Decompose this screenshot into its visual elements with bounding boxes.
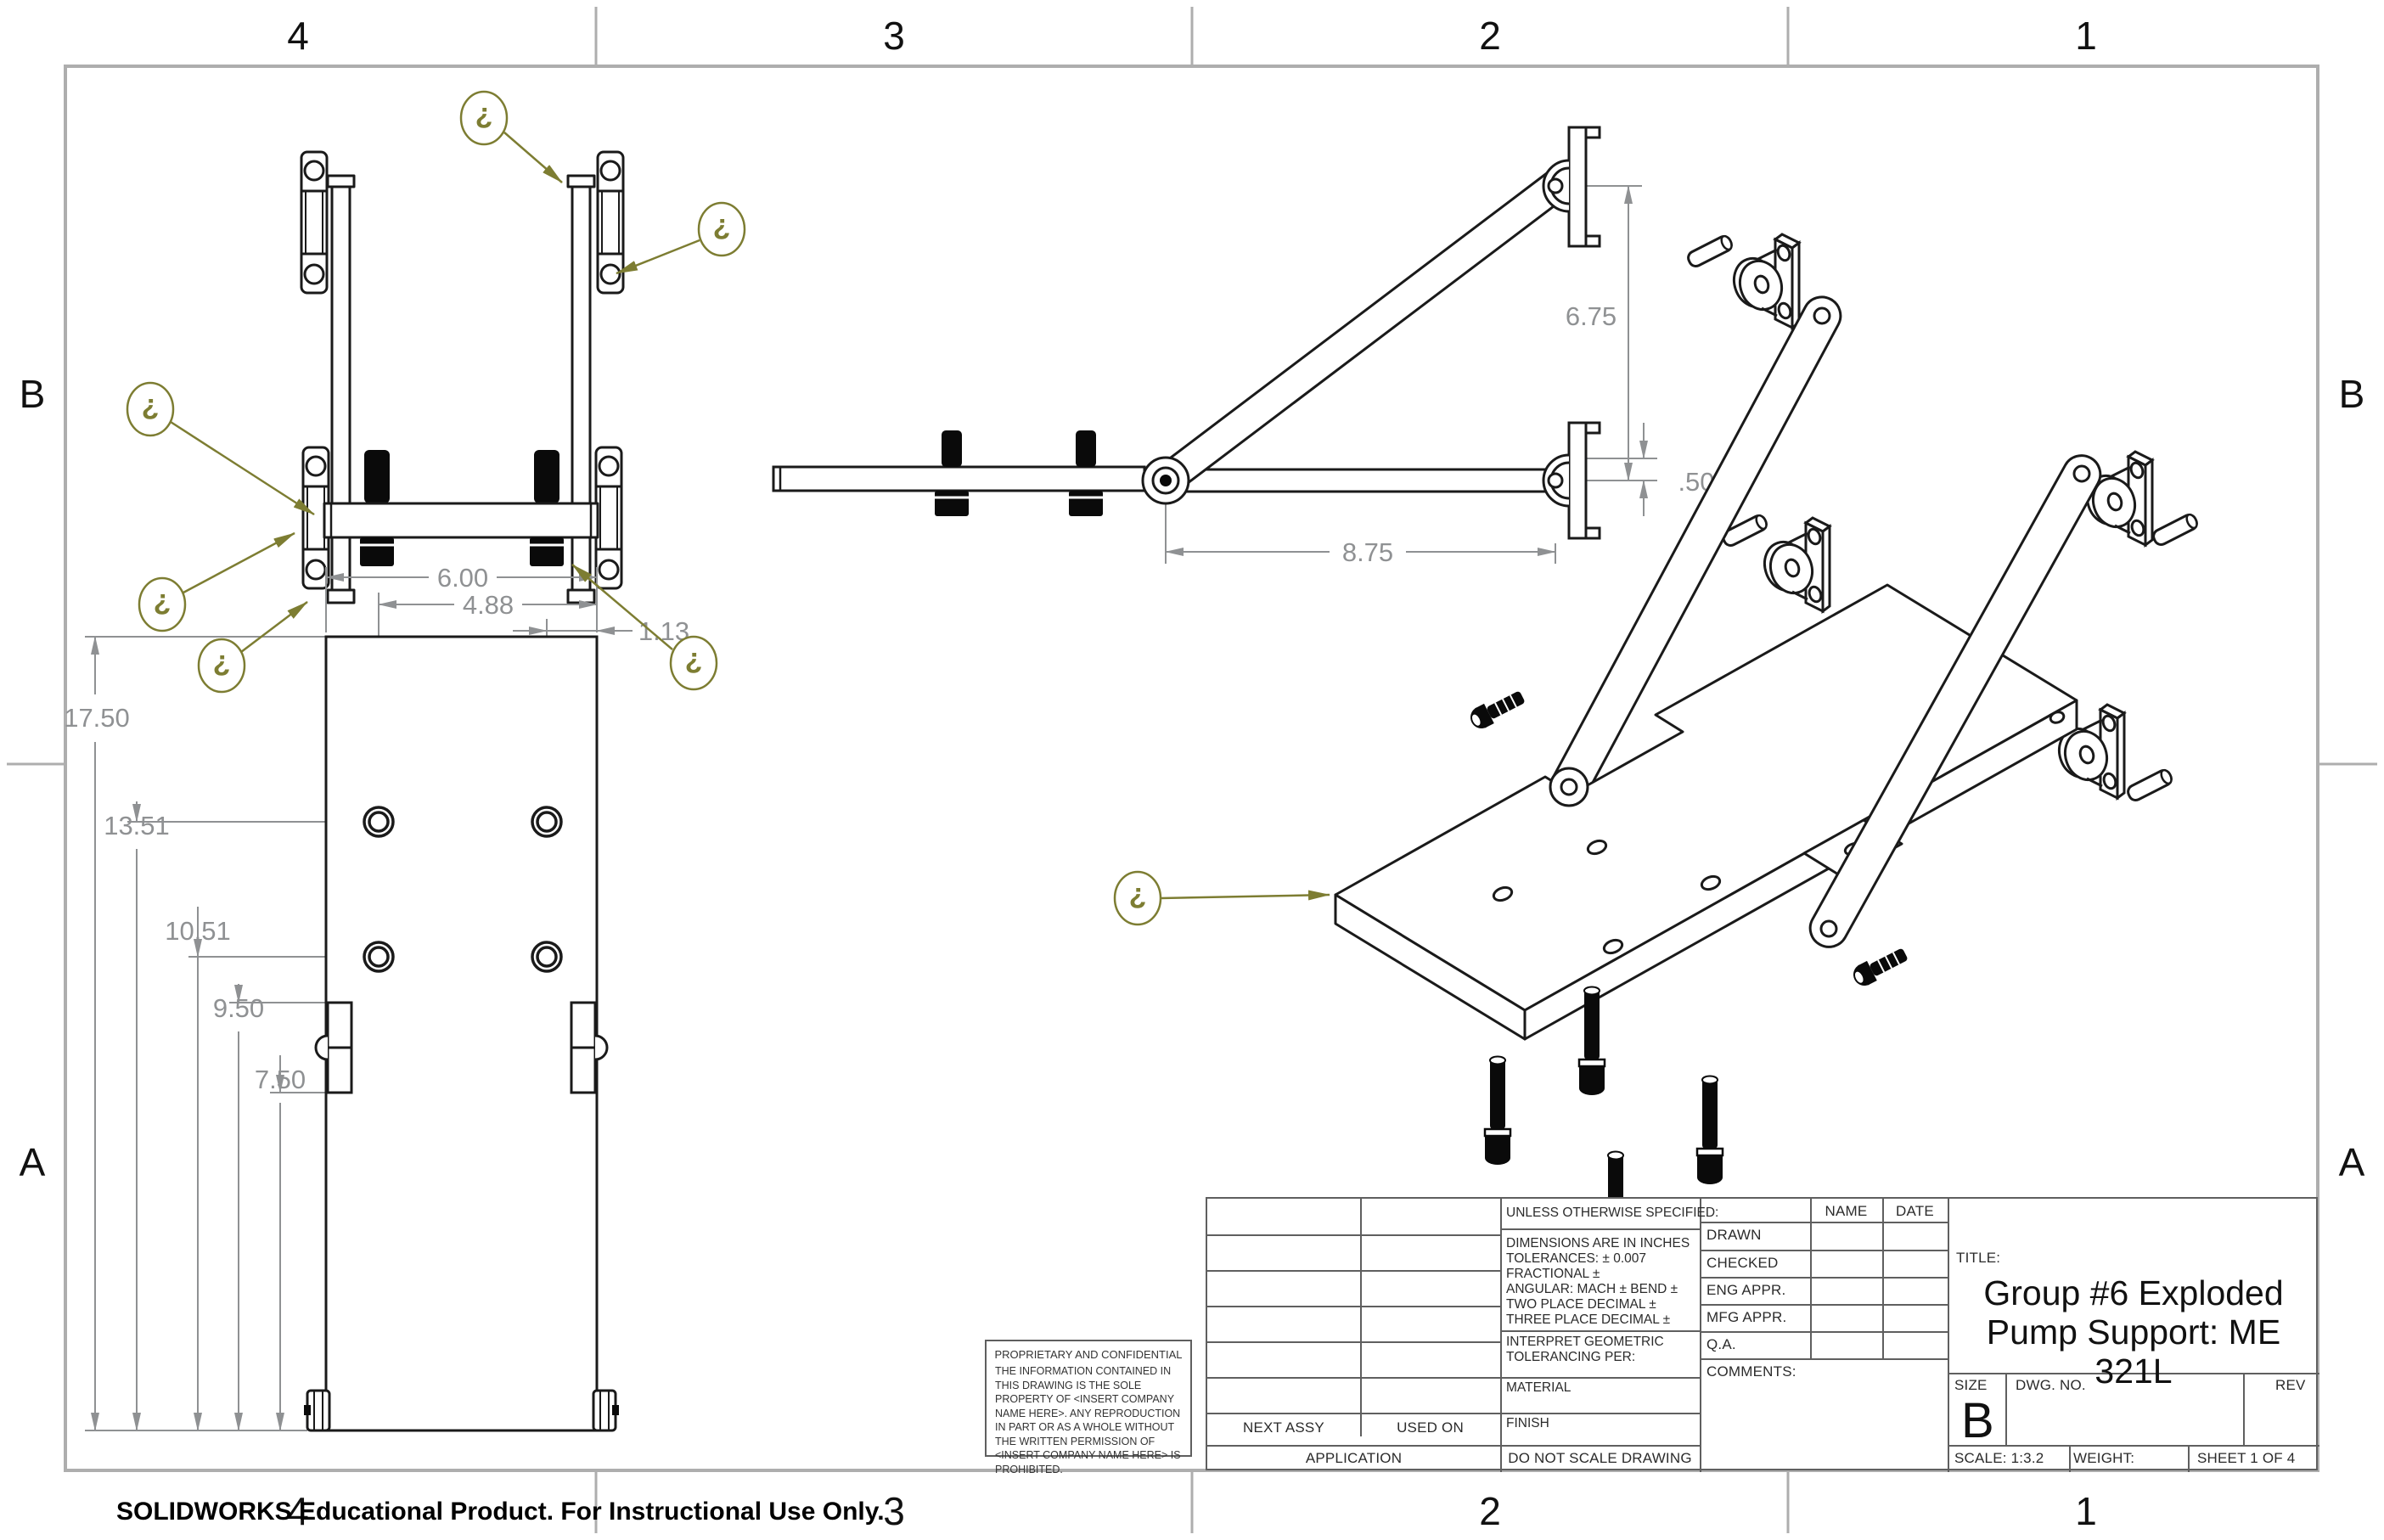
qa-label: Q.A.	[1706, 1336, 1736, 1353]
interpret-line1: INTERPRET GEOMETRIC	[1506, 1335, 1664, 1350]
spec-three-place: THREE PLACE DECIMAL ±	[1506, 1312, 1670, 1328]
spec-angular: ANGULAR: MACH ± BEND ±	[1506, 1282, 1678, 1297]
exploded-view	[1335, 234, 2199, 1260]
dim-675: 6.75	[1566, 301, 1617, 331]
balloon-question-mark: ?	[142, 392, 160, 424]
title-line-1: Group #6 Exploded	[1948, 1273, 2319, 1312]
spec-inches: DIMENSIONS ARE IN INCHES	[1506, 1236, 1690, 1251]
dim-875: 8.75	[1342, 537, 1393, 567]
zone-right-b: B	[2339, 372, 2365, 416]
material-label: MATERIAL	[1506, 1380, 1571, 1396]
proprietary-note: PROPRIETARY AND CONFIDENTIAL THE INFORMA…	[985, 1340, 1192, 1457]
title-label: TITLE:	[1956, 1250, 2000, 1267]
zone-top-3: 3	[883, 14, 905, 58]
cap-screw	[1697, 1076, 1723, 1185]
front-view	[301, 152, 623, 603]
spec-fractional: FRACTIONAL ±	[1506, 1267, 1600, 1282]
size-value: B	[1961, 1392, 1994, 1449]
dim-1051: 10.51	[165, 916, 231, 946]
interpret-line2: TOLERANCING PER:	[1506, 1350, 1635, 1365]
dim-950: 9.50	[213, 993, 264, 1023]
zone-left-a: A	[20, 1140, 46, 1184]
dim-750: 7.50	[255, 1065, 306, 1094]
pin-icon	[2151, 513, 2199, 548]
balloon-question-mark: ?	[685, 646, 703, 678]
balloon-question-mark: ?	[475, 101, 493, 133]
drawing-sheet: 4 3 2 1 4 3 2 1 B A B A	[0, 0, 2384, 1540]
zone-bottom-1: 1	[2075, 1489, 2097, 1533]
zone-left-b: B	[20, 372, 46, 416]
date-header: DATE	[1882, 1203, 1948, 1220]
proprietary-title: PROPRIETARY AND CONFIDENTIAL	[987, 1348, 1190, 1361]
dim-1351: 13.51	[104, 811, 170, 840]
checked-label: CHECKED	[1706, 1255, 1779, 1272]
weight-label: WEIGHT:	[2073, 1450, 2134, 1467]
scale-value: SCALE: 1:3.2	[1954, 1450, 2044, 1467]
drawing-title: Group #6 Exploded Pump Support: ME 321L	[1948, 1273, 2319, 1391]
zone-right-a: A	[2339, 1140, 2365, 1184]
dim-488: 4.88	[463, 590, 514, 620]
zone-top-2: 2	[1479, 14, 1501, 58]
pin-icon	[2126, 768, 2173, 803]
used-on-label: USED ON	[1360, 1419, 1500, 1436]
name-header: NAME	[1810, 1203, 1882, 1220]
do-not-scale-label: DO NOT SCALE DRAWING	[1500, 1450, 1700, 1467]
balloon-question-mark: ?	[213, 649, 231, 681]
rev-label: REV	[2275, 1377, 2306, 1394]
next-assy-label: NEXT ASSY	[1207, 1419, 1360, 1436]
mfg-appr-label: MFG APPR.	[1706, 1309, 1786, 1326]
size-label: SIZE	[1954, 1377, 1988, 1394]
title-line-2: Pump Support: ME	[1948, 1312, 2319, 1352]
balloon-question-mark: ?	[1129, 881, 1147, 913]
application-label: APPLICATION	[1207, 1450, 1500, 1467]
balloon-question-mark: ?	[713, 212, 731, 244]
button-screw	[1850, 944, 1911, 990]
zone-top-1: 1	[2075, 14, 2097, 58]
drawn-label: DRAWN	[1706, 1227, 1762, 1244]
comments-label: COMMENTS:	[1706, 1363, 1796, 1380]
pillow-block	[1728, 234, 1799, 328]
zone-bottom-2: 2	[1479, 1489, 1501, 1533]
finish-label: FINISH	[1506, 1416, 1549, 1431]
dim-600: 6.00	[437, 563, 488, 593]
proprietary-body: THE INFORMATION CONTAINED IN THIS DRAWIN…	[995, 1364, 1182, 1476]
eng-appr-label: ENG APPR.	[1706, 1282, 1785, 1299]
bottom-view: 17.50 13.51 10.51 9.50 7.50 6.00 4.88 1.…	[64, 563, 689, 1430]
spec-two-place: TWO PLACE DECIMAL ±	[1506, 1297, 1656, 1312]
cap-screw	[1485, 1057, 1510, 1166]
pin-icon	[1686, 234, 1734, 269]
title-block: NEXT ASSY USED ON APPLICATION UNLESS OTH…	[1206, 1197, 2318, 1470]
spec-tolerances: TOLERANCES: ± 0.007	[1506, 1251, 1646, 1267]
side-view: 6.75 .50 8.75	[773, 127, 1715, 567]
zone-bottom-3: 3	[883, 1489, 905, 1533]
pillow-block	[1758, 518, 1830, 611]
balloon-question-mark: ?	[154, 587, 171, 620]
solidworks-footer: SOLIDWORKS Educational Product. For Inst…	[116, 1498, 885, 1526]
dim-1750: 17.50	[64, 703, 130, 733]
dwg-no-label: DWG. NO.	[2016, 1377, 2086, 1394]
zone-top-4: 4	[287, 14, 309, 58]
title-line-3: 321L	[1948, 1352, 2319, 1391]
sheet-of-label: SHEET 1 OF 4	[2197, 1450, 2295, 1467]
button-screw	[1467, 687, 1528, 733]
unless-label: UNLESS OTHERWISE SPECIFIED:	[1506, 1206, 1718, 1221]
